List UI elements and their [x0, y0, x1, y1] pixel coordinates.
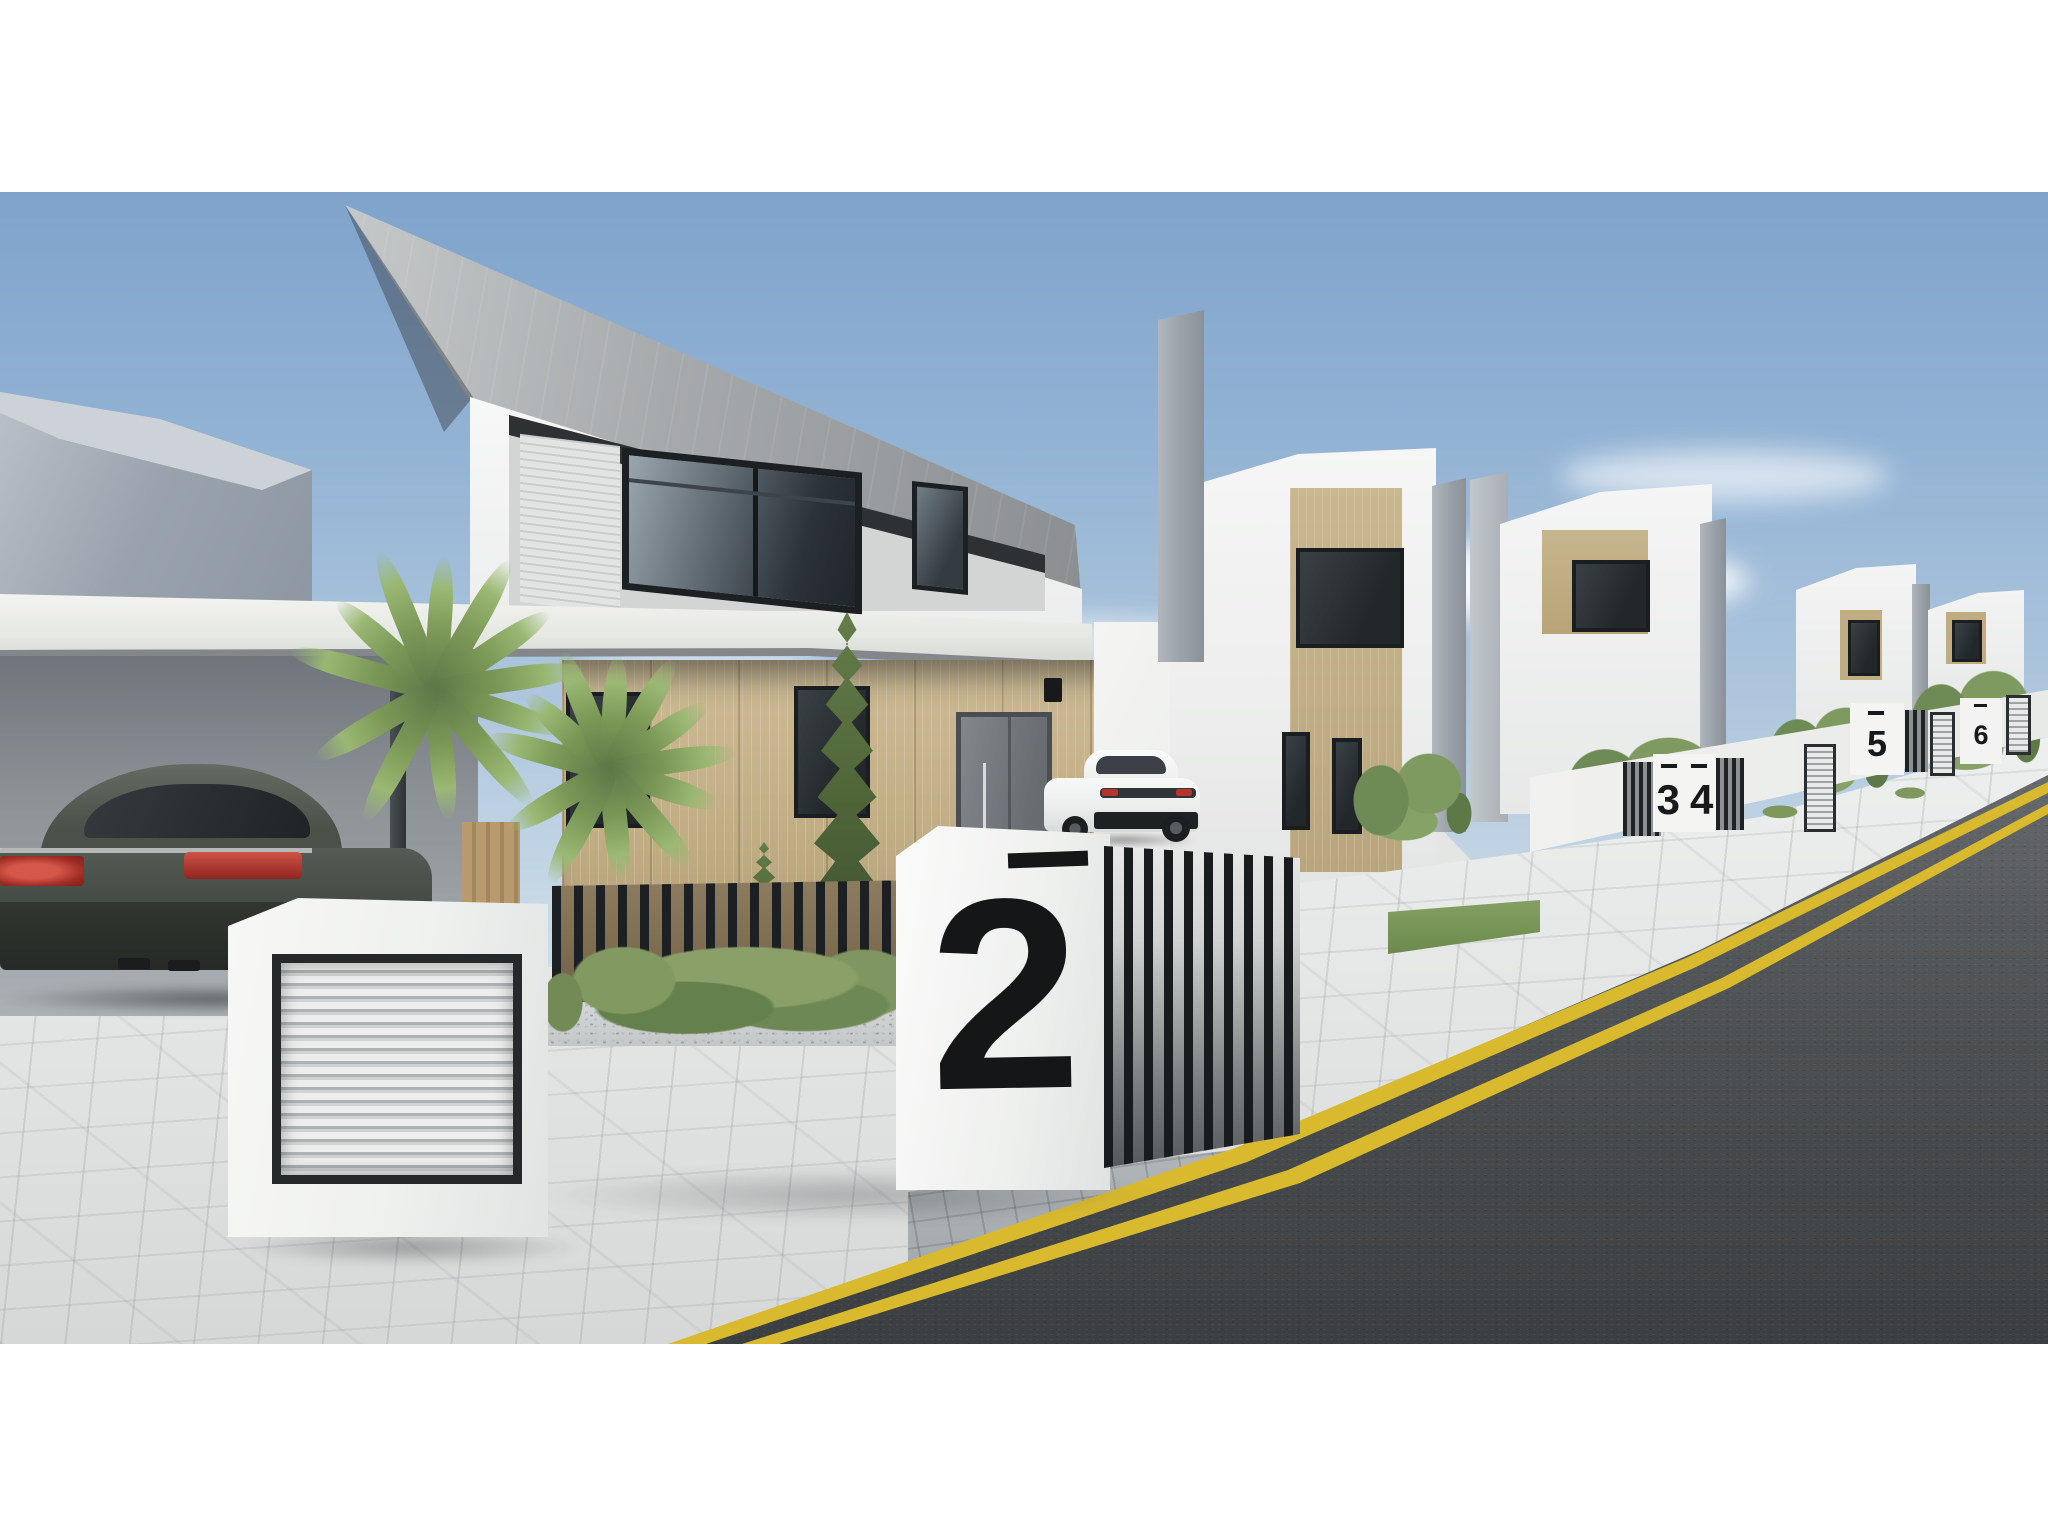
driveway-gate-slats: [1104, 842, 1300, 1168]
house1-ground-window: [566, 692, 650, 828]
grass-tuft: [1752, 788, 1808, 822]
hedge-tree: [1336, 730, 1486, 858]
house4-window: [1848, 620, 1880, 676]
house1-shutter-panel: [520, 434, 620, 614]
house2-ground-window: [1282, 732, 1310, 830]
house-number-pillar-3-4: 3 4: [1653, 754, 1717, 832]
number-plate-dash: [1661, 764, 1677, 768]
grass-tuft: [1886, 772, 1934, 802]
entry-wall-lamp: [1044, 678, 1062, 702]
number-plate-dash: [1868, 711, 1884, 715]
sports-car-white: [1044, 748, 1200, 846]
house-number-2: 2: [926, 863, 1085, 1126]
concrete-fin: [1158, 310, 1204, 662]
car-exhaust: [168, 960, 200, 971]
car-exhaust: [118, 958, 150, 969]
car-rear-window: [1096, 756, 1166, 774]
render-canvas: 3 4 5 6: [0, 0, 2048, 1536]
car-taillight: [0, 856, 84, 886]
timber-planter-box: [462, 822, 520, 904]
house-number-pillar-5: 5: [1850, 703, 1904, 775]
house-number-pillar-6: 6: [1960, 698, 2002, 764]
letterbox-band-top: [0, 0, 2048, 192]
slatted-gate: [1716, 758, 1744, 830]
number-plate-dash: [1974, 704, 1987, 707]
louver-grille: [272, 954, 522, 1184]
house1-large-window: [622, 447, 862, 614]
house-number-4: 4: [1690, 776, 1713, 824]
house1-small-window: [912, 481, 968, 595]
house-number-3: 3: [1657, 776, 1680, 824]
house-number-6: 6: [1973, 720, 1988, 750]
letterbox-band-bottom: [0, 1344, 2048, 1536]
house2-upper-window: [1296, 548, 1404, 648]
utility-louver-door: [2006, 695, 2031, 755]
slatted-gate: [1905, 710, 1928, 772]
house-number-5: 5: [1867, 723, 1887, 764]
utility-louver-door: [1930, 712, 1955, 776]
car-taillight: [1176, 789, 1192, 796]
car-taillight: [184, 852, 302, 879]
car-wheel: [1162, 814, 1190, 842]
house3-window: [1572, 560, 1650, 632]
utility-louver-door: [1804, 744, 1836, 832]
number-plate-dash: [1691, 764, 1707, 768]
car-taillight: [1102, 789, 1118, 796]
street-render-photo: 3 4 5 6: [0, 192, 2048, 1344]
